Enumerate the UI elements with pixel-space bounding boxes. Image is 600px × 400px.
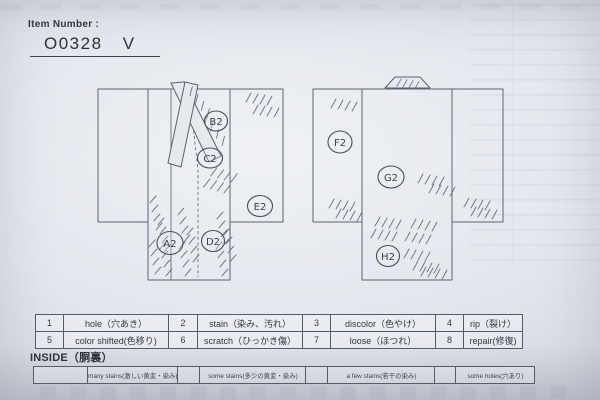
- legend-label: discolor（色やけ）: [331, 315, 436, 332]
- legend-label: loose（ほつれ）: [331, 332, 436, 349]
- defect-mark-f2: F2: [328, 131, 352, 153]
- inside-checkbox-cell: [178, 367, 200, 384]
- legend-code: 2: [169, 315, 198, 332]
- back-collar: [385, 77, 430, 88]
- item-number-underline: [30, 56, 160, 57]
- defect-mark-label: C2: [203, 154, 216, 165]
- back-outline: [313, 77, 503, 280]
- item-number-value: O0328 V: [44, 34, 136, 54]
- defect-mark-label: G2: [384, 173, 398, 184]
- defect-mark-label: B2: [209, 117, 222, 128]
- inside-checkbox-cell: [34, 367, 88, 384]
- inside-condition-table: many stains(激しい黄変・染み) some stains(多少の黄変・…: [33, 366, 535, 384]
- legend-label: rip（裂け）: [464, 315, 523, 332]
- inside-option-label: some stains(多少の黄変・染み): [200, 367, 306, 384]
- item-number-label: Item Number :: [28, 19, 99, 30]
- back-stain-hatching: [329, 79, 497, 279]
- defect-mark-d2: D2: [202, 231, 225, 252]
- legend-code: 4: [436, 315, 464, 332]
- front-outline: [98, 82, 283, 280]
- defect-mark-a2: A2: [157, 232, 183, 255]
- kimono-front-diagram: A2 B2 C2 D2 E2: [85, 70, 295, 300]
- defect-mark-label: E2: [254, 202, 267, 213]
- legend-label: hole（穴あき）: [64, 315, 169, 332]
- legend-row-1: 1 hole（穴あき） 2 stain（染み、汚れ） 3 discolor（色や…: [36, 315, 523, 332]
- legend-label: repair(修復): [464, 332, 523, 349]
- legend-code: 3: [303, 315, 331, 332]
- legend-row-2: 5 color shifted(色移り) 6 scratch（ひっかき傷） 7 …: [36, 332, 523, 349]
- defect-mark-label: H2: [381, 252, 395, 263]
- defect-mark-c2: C2: [198, 148, 223, 168]
- defect-mark-label: D2: [206, 237, 220, 248]
- kimono-back-diagram: F2 G2 H2: [300, 70, 510, 300]
- inside-option-label: a few stains(若干の染み): [328, 367, 435, 384]
- inside-section-title: INSIDE（胴裏）: [30, 349, 113, 365]
- legend-code: 8: [436, 332, 464, 349]
- defect-mark-label: F2: [334, 138, 346, 149]
- legend-code: 7: [303, 332, 331, 349]
- defect-mark-b2: B2: [205, 111, 228, 131]
- defect-legend-table: 1 hole（穴あき） 2 stain（染み、汚れ） 3 discolor（色や…: [35, 314, 523, 349]
- inside-row: many stains(激しい黄変・染み) some stains(多少の黄変・…: [34, 367, 535, 384]
- photo-of-paper-form: Item Number : O0328 V: [0, 0, 600, 400]
- legend-code: 5: [36, 332, 64, 349]
- paper-showthrough-bottom: [40, 386, 570, 399]
- inside-option-label: some holes(穴あり): [456, 367, 535, 384]
- inside-checkbox-cell: [435, 367, 456, 384]
- defect-mark-h2: H2: [377, 246, 400, 267]
- legend-code: 1: [36, 315, 64, 332]
- legend-label: color shifted(色移り): [64, 332, 169, 349]
- inside-checkbox-cell: [306, 367, 328, 384]
- inside-option-label: many stains(激しい黄変・染み): [88, 367, 178, 384]
- legend-label: stain（染み、汚れ）: [198, 315, 303, 332]
- legend-label: scratch（ひっかき傷）: [198, 332, 303, 349]
- legend-code: 6: [169, 332, 198, 349]
- paper-showthrough-top: [0, 4, 600, 10]
- defect-mark-g2: G2: [378, 166, 404, 188]
- defect-mark-label: A2: [163, 239, 176, 250]
- defect-mark-e2: E2: [248, 196, 273, 217]
